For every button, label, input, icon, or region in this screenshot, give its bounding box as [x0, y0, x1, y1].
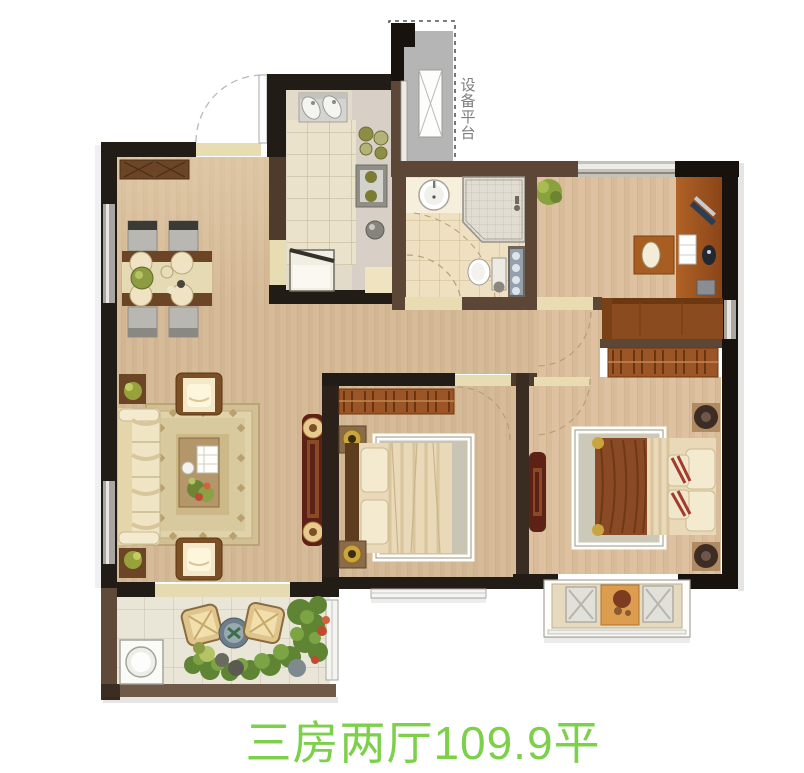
svg-text:备: 备	[460, 93, 475, 110]
svg-text:台: 台	[460, 125, 475, 142]
svg-text:设: 设	[460, 77, 475, 94]
svg-text:平: 平	[460, 109, 475, 126]
